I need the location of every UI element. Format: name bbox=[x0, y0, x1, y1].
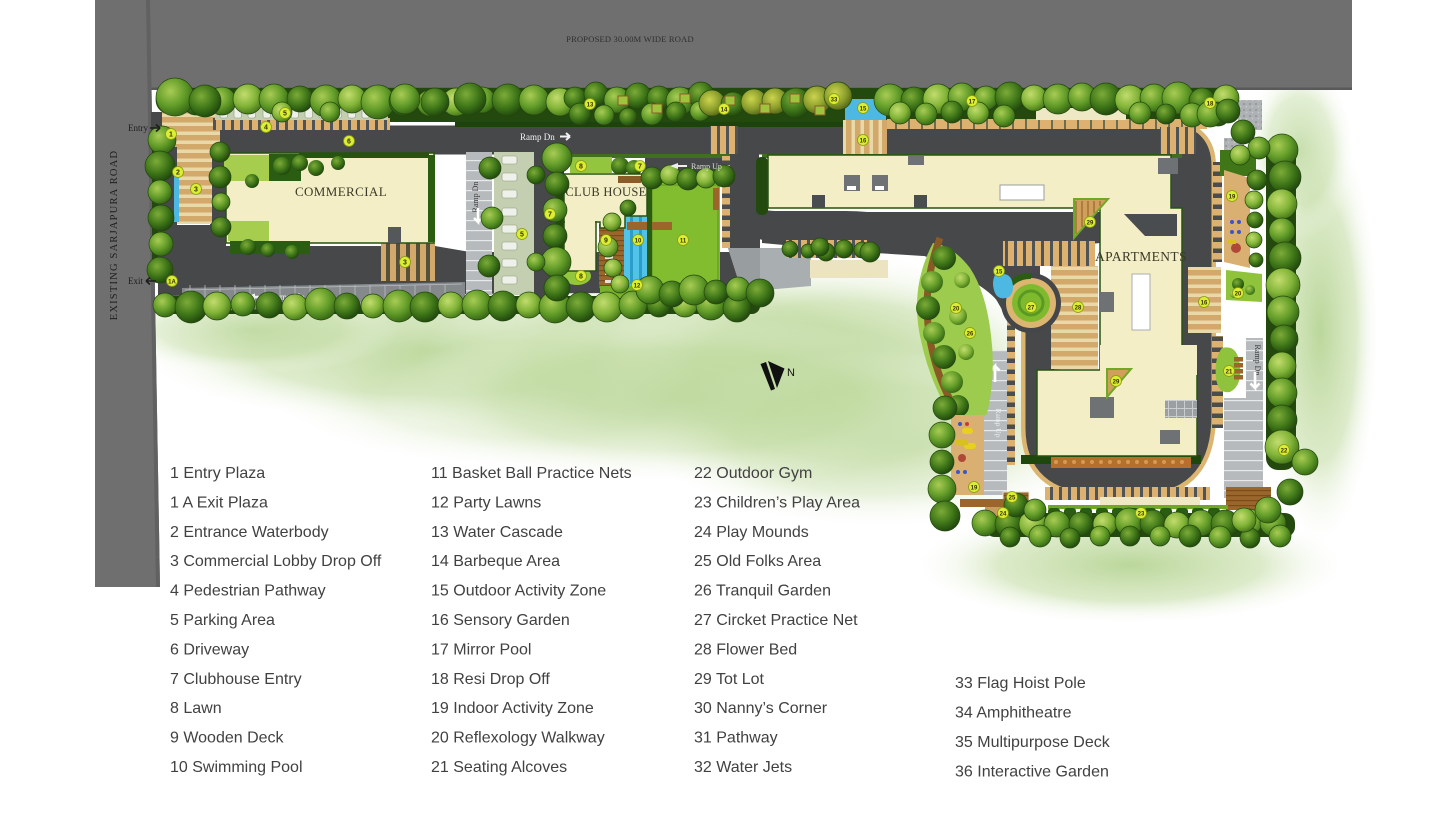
svg-text:27 Circket Practice Net: 27 Circket Practice Net bbox=[694, 612, 858, 629]
svg-text:13 Water Cascade: 13 Water Cascade bbox=[431, 524, 563, 541]
svg-text:Ramp Dn: Ramp Dn bbox=[1253, 345, 1262, 376]
svg-text:16: 16 bbox=[1201, 300, 1208, 306]
svg-text:30 Nanny’s Corner: 30 Nanny’s Corner bbox=[694, 700, 828, 717]
svg-text:PROPOSED 30.00M WIDE ROAD: PROPOSED 30.00M WIDE ROAD bbox=[566, 34, 694, 44]
svg-text:8 Lawn: 8 Lawn bbox=[170, 700, 222, 717]
svg-text:22 Outdoor Gym: 22 Outdoor Gym bbox=[694, 465, 812, 482]
svg-text:15: 15 bbox=[860, 106, 867, 112]
svg-text:20: 20 bbox=[953, 306, 960, 312]
svg-text:15 Outdoor Activity Zone: 15 Outdoor Activity Zone bbox=[431, 583, 606, 600]
svg-text:2 Entrance Waterbody: 2 Entrance Waterbody bbox=[170, 524, 329, 541]
svg-text:13: 13 bbox=[587, 102, 594, 108]
svg-text:3: 3 bbox=[403, 259, 407, 266]
svg-text:32 Water Jets: 32 Water Jets bbox=[694, 759, 792, 776]
svg-text:19: 19 bbox=[1229, 194, 1236, 200]
svg-text:27: 27 bbox=[1028, 305, 1035, 311]
svg-text:10 Swimming Pool: 10 Swimming Pool bbox=[170, 759, 303, 776]
svg-text:6: 6 bbox=[347, 138, 351, 145]
svg-text:33 Flag Hoist Pole: 33 Flag Hoist Pole bbox=[955, 675, 1086, 692]
svg-text:4 Pedestrian Pathway: 4 Pedestrian Pathway bbox=[170, 583, 326, 600]
svg-text:34 Amphitheatre: 34 Amphitheatre bbox=[955, 704, 1072, 721]
svg-text:4: 4 bbox=[264, 124, 268, 131]
svg-text:21 Seating Alcoves: 21 Seating Alcoves bbox=[431, 759, 567, 776]
svg-text:1 A Exit Plaza: 1 A Exit Plaza bbox=[170, 494, 268, 511]
svg-text:17 Mirror Pool: 17 Mirror Pool bbox=[431, 641, 531, 658]
svg-text:N: N bbox=[787, 367, 795, 379]
svg-text:11: 11 bbox=[680, 238, 687, 244]
svg-text:3 Commercial Lobby Drop Off: 3 Commercial Lobby Drop Off bbox=[170, 553, 382, 570]
svg-text:CLUB HOUSE: CLUB HOUSE bbox=[565, 185, 646, 199]
svg-text:COMMERCIAL: COMMERCIAL bbox=[295, 184, 387, 199]
svg-text:26: 26 bbox=[967, 331, 974, 337]
svg-text:5 Parking Area: 5 Parking Area bbox=[170, 612, 275, 629]
svg-text:1: 1 bbox=[169, 131, 173, 138]
svg-text:35 Multipurpose Deck: 35 Multipurpose Deck bbox=[955, 734, 1111, 751]
svg-text:22: 22 bbox=[1281, 448, 1288, 454]
svg-text:7: 7 bbox=[548, 211, 552, 218]
svg-text:24: 24 bbox=[1000, 511, 1007, 517]
svg-text:16 Sensory Garden: 16 Sensory Garden bbox=[431, 612, 570, 629]
svg-text:28: 28 bbox=[1075, 305, 1082, 311]
svg-text:5: 5 bbox=[283, 110, 287, 117]
svg-text:5: 5 bbox=[520, 231, 524, 238]
svg-text:14: 14 bbox=[721, 107, 728, 113]
svg-text:EXISTING SARJAPURA ROAD: EXISTING SARJAPURA ROAD bbox=[109, 150, 120, 321]
svg-text:9: 9 bbox=[604, 237, 608, 244]
svg-text:25 Old Folks Area: 25 Old Folks Area bbox=[694, 553, 821, 570]
svg-text:1A: 1A bbox=[168, 279, 176, 285]
svg-text:Exit: Exit bbox=[128, 276, 143, 286]
svg-text:14 Barbeque Area: 14 Barbeque Area bbox=[431, 553, 560, 570]
svg-text:23 Children’s Play Area: 23 Children’s Play Area bbox=[694, 494, 860, 511]
svg-text:18: 18 bbox=[1207, 101, 1214, 107]
svg-text:Ramp Up: Ramp Up bbox=[994, 409, 1003, 438]
svg-text:26 Tranquil Garden: 26 Tranquil Garden bbox=[694, 583, 831, 600]
svg-text:33: 33 bbox=[831, 97, 838, 103]
svg-text:19 Indoor Activity Zone: 19 Indoor Activity Zone bbox=[431, 700, 594, 717]
svg-text:18 Resi Drop Off: 18 Resi Drop Off bbox=[431, 671, 550, 688]
svg-text:7 Clubhouse Entry: 7 Clubhouse Entry bbox=[170, 671, 302, 688]
svg-text:17: 17 bbox=[969, 99, 976, 105]
svg-text:7: 7 bbox=[638, 163, 642, 170]
svg-text:6 Driveway: 6 Driveway bbox=[170, 641, 249, 658]
svg-text:29 Tot Lot: 29 Tot Lot bbox=[694, 671, 765, 688]
svg-text:1 Entry Plaza: 1 Entry Plaza bbox=[170, 465, 265, 482]
svg-text:Entry: Entry bbox=[128, 123, 148, 133]
svg-text:Ramp Up: Ramp Up bbox=[691, 162, 722, 171]
svg-text:3: 3 bbox=[194, 186, 198, 193]
svg-text:APARTMENTS: APARTMENTS bbox=[1095, 249, 1187, 264]
svg-text:29: 29 bbox=[1113, 379, 1120, 385]
svg-text:15: 15 bbox=[996, 269, 1003, 275]
svg-text:20: 20 bbox=[1235, 291, 1242, 297]
svg-text:10: 10 bbox=[635, 238, 642, 244]
svg-text:8: 8 bbox=[579, 273, 583, 280]
svg-text:20 Reflexology Walkway: 20 Reflexology Walkway bbox=[431, 730, 605, 747]
svg-text:19: 19 bbox=[971, 485, 978, 491]
svg-text:16: 16 bbox=[860, 138, 867, 144]
svg-text:28 Flower Bed: 28 Flower Bed bbox=[694, 641, 797, 658]
svg-text:12 Party Lawns: 12 Party Lawns bbox=[431, 494, 541, 511]
svg-text:8: 8 bbox=[579, 163, 583, 170]
svg-text:Ramp Dn: Ramp Dn bbox=[520, 132, 555, 142]
svg-text:36 Interactive Garden: 36 Interactive Garden bbox=[955, 763, 1109, 780]
svg-text:9 Wooden Deck: 9 Wooden Deck bbox=[170, 730, 285, 747]
svg-text:2: 2 bbox=[176, 169, 180, 176]
svg-text:21: 21 bbox=[1226, 369, 1233, 375]
svg-text:25: 25 bbox=[1009, 495, 1016, 501]
svg-text:31 Pathway: 31 Pathway bbox=[694, 730, 778, 747]
svg-text:Ramp Dn: Ramp Dn bbox=[471, 182, 480, 213]
svg-text:24 Play Mounds: 24 Play Mounds bbox=[694, 524, 809, 541]
svg-text:29: 29 bbox=[1087, 220, 1094, 226]
svg-text:12: 12 bbox=[634, 283, 641, 289]
svg-text:23: 23 bbox=[1138, 511, 1145, 517]
svg-text:11 Basket Ball Practice Nets: 11 Basket Ball Practice Nets bbox=[431, 465, 632, 482]
